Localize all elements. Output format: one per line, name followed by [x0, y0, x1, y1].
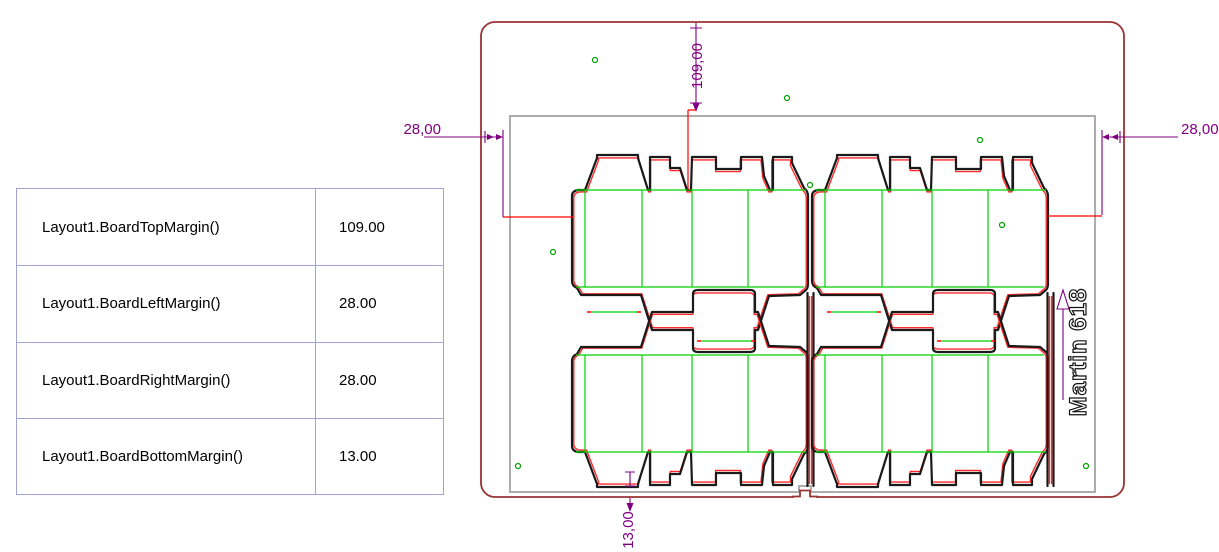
registration-mark — [1000, 223, 1005, 228]
machine-annotation: Martin 618 — [1057, 288, 1092, 417]
registration-mark — [551, 250, 556, 255]
registration-mark — [785, 96, 790, 101]
cad-canvas: Layout1.BoardTopMargin() 109.00 Layout1.… — [0, 0, 1219, 552]
dimension-left-label: 28,00 — [403, 121, 441, 138]
registration-mark — [1084, 464, 1089, 469]
board-outline — [481, 22, 1124, 497]
dimension-bottom-label: 13,00 — [620, 511, 637, 549]
registration-mark — [978, 138, 983, 143]
registration-mark — [808, 183, 813, 188]
blank-column-left — [572, 155, 814, 487]
registration-mark — [593, 58, 598, 63]
dimension-right-margin: 28,00 — [1048, 121, 1219, 216]
dimension-left-margin: 28,00 — [403, 121, 573, 217]
dimension-top-label: 109,00 — [689, 43, 706, 89]
dimension-right-label: 28,00 — [1181, 121, 1219, 138]
registration-marks — [516, 58, 1089, 469]
blank-column-right — [812, 155, 1054, 487]
layout-drawing: 109,00 28,00 28,00 13,00 Mar — [0, 0, 1219, 552]
machine-label: Martin 618 — [1065, 288, 1092, 417]
registration-mark — [516, 464, 521, 469]
